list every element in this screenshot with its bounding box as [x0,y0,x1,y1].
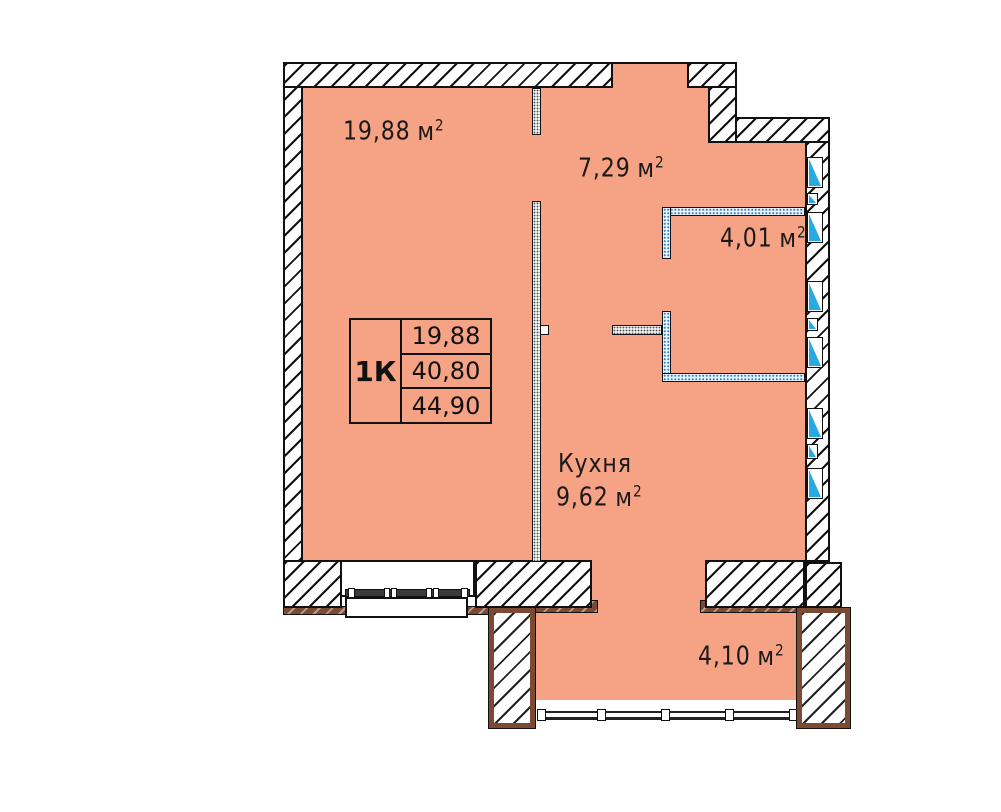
vent-triangle-icon [809,320,816,329]
wall-top-right-band [735,117,830,143]
bath-area-value: 4,01 [720,224,773,254]
glazing-connector [661,709,670,721]
wall-top [283,62,613,88]
floor-balcony-passage [592,560,705,612]
vent-triangle-icon [809,283,821,310]
floor-plan: 19,88м2 7,29м2 4,01м2 Кухня 9,62м2 4,10м… [0,0,1001,812]
kitchen-area-value: 9,62 [556,483,609,513]
wall-left [283,62,303,608]
vent-triangle-icon [809,195,816,203]
floor-entrance [613,62,687,89]
partition-kitchen-stub [612,325,662,335]
room-area-label-bath: 4,01м2 [720,222,807,254]
wall-top-right-step [708,86,737,143]
area-unit-sup: 2 [435,115,445,134]
glazing-connector [537,709,546,721]
vent-triangle-icon [809,410,821,437]
apartment-usable-area-cell: 40,80 [402,353,490,388]
balcony-area-value: 4,10 [698,642,751,672]
vent-triangle-icon [809,339,821,366]
area-unit: м [417,117,435,147]
balcony-wall-left [489,608,535,728]
vent-icon [807,468,823,499]
apartment-total-area-cell: 44,90 [402,387,490,422]
vent-icon [807,318,818,331]
window-sill [345,597,468,618]
wet-wall-bath-left-upper [662,207,671,259]
balcony-wall-right [797,608,850,728]
wall-bottom-left [283,560,342,608]
apartment-type-cell: 1К [351,320,402,422]
vent-triangle-icon [809,214,821,241]
vent-triangle-icon [809,446,816,457]
vent-icon [807,212,823,243]
area-unit-sup: 2 [655,152,665,171]
apartment-info-table: 1К 19,88 40,80 44,90 [349,318,492,424]
area-unit-sup: 2 [633,481,643,500]
room-area-label-kitchen: 9,62м2 [556,481,643,513]
vent-icon [807,408,823,439]
vent-icon [807,444,818,459]
wall-bottom-right [705,560,805,608]
partition-door-jamb [540,325,549,335]
vent-triangle-icon [809,159,821,186]
vent-icon [807,157,823,188]
area-unit: м [757,642,775,672]
area-unit-sup: 2 [797,222,807,241]
area-unit-sup: 2 [775,640,785,659]
glazing-connector [789,709,797,721]
area-unit: м [637,154,655,184]
wall-top-right-block [687,62,737,88]
room-area-label-living: 19,88м2 [343,115,444,147]
entrance-opening-line [613,62,687,64]
vent-icon [807,337,823,368]
room-area-label-hall: 7,29м2 [578,152,665,184]
vent-icon [807,193,818,205]
room-area-label-balcony: 4,10м2 [698,640,785,672]
wet-wall-bath-top [662,207,805,216]
kitchen-name: Кухня [558,449,632,479]
living-area-value: 19,88 [343,117,411,147]
wet-wall-bath-left-lower [662,311,671,382]
wall-bottom-mid [475,560,592,608]
apartment-living-area-cell: 19,88 [402,320,490,353]
wall-right-lower [805,562,842,608]
partition-hall-lower [532,201,541,562]
area-unit: м [779,224,797,254]
hall-area-value: 7,29 [578,154,631,184]
floor-hall-right [708,143,805,560]
vent-icon [807,281,823,312]
glazing-connector [725,709,734,721]
room-name-label-kitchen: Кухня [558,449,632,479]
partition-hall-upper [532,88,541,135]
glazing-connector [597,709,606,721]
vent-triangle-icon [809,470,821,497]
wet-wall-bath-bottom [662,373,805,382]
area-unit: м [615,483,633,513]
window-living-glazing [345,589,470,597]
